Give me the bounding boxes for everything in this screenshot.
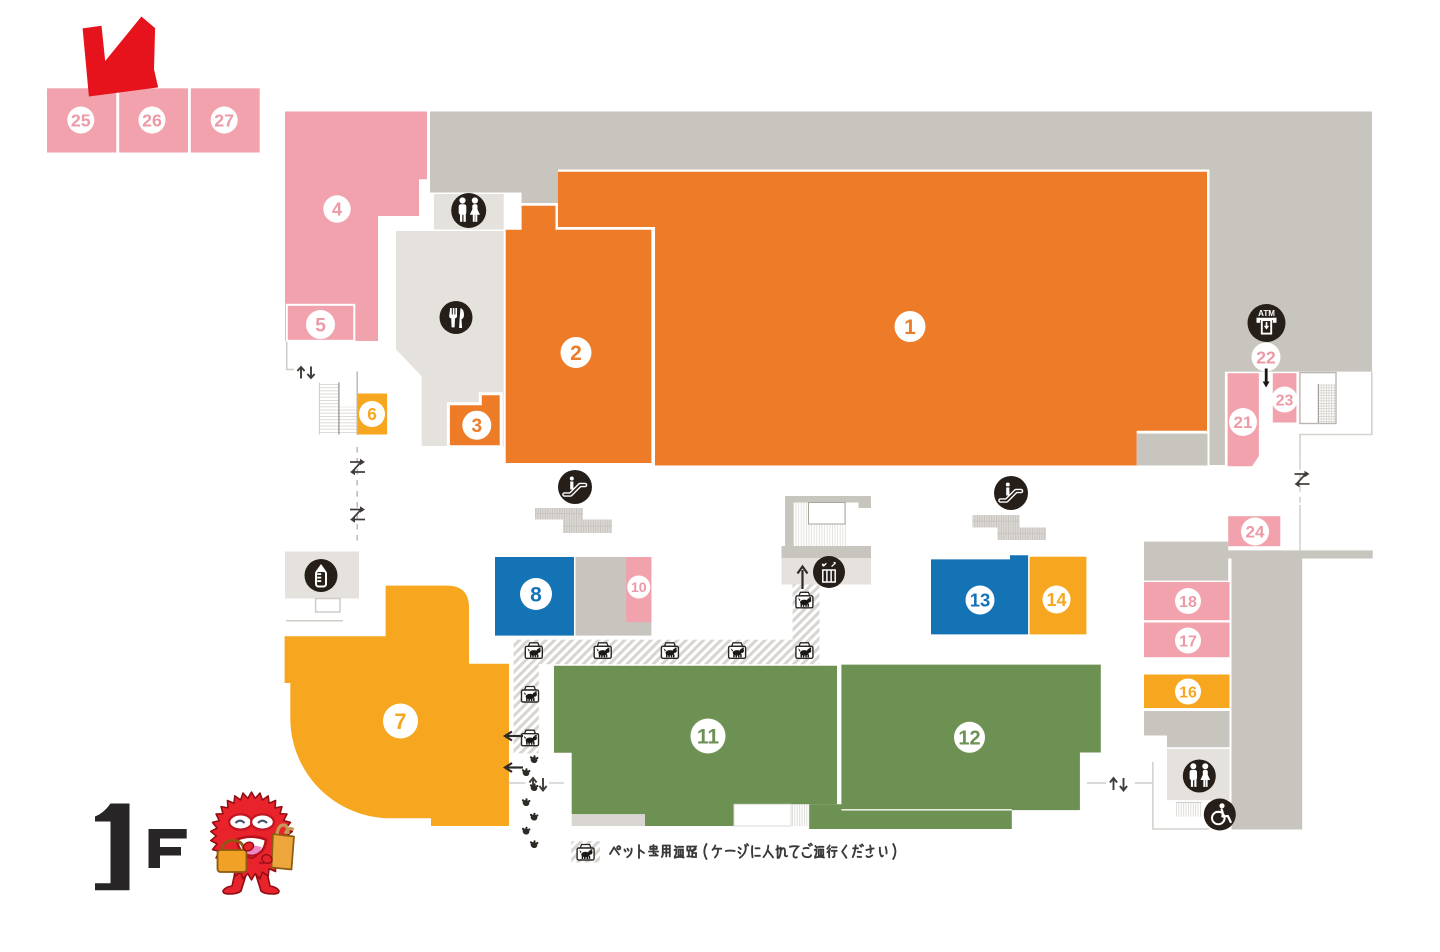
svg-text:25: 25 bbox=[71, 110, 91, 130]
svg-text:4: 4 bbox=[332, 200, 342, 220]
svg-text:ATM: ATM bbox=[1258, 309, 1275, 318]
svg-text:21: 21 bbox=[1234, 413, 1253, 432]
svg-text:24: 24 bbox=[1246, 523, 1265, 542]
svg-text:14: 14 bbox=[1046, 590, 1066, 610]
svg-text:16: 16 bbox=[1179, 684, 1197, 701]
svg-text:2: 2 bbox=[570, 342, 582, 365]
svg-text:1: 1 bbox=[904, 316, 916, 339]
svg-text:12: 12 bbox=[958, 728, 980, 750]
svg-text:13: 13 bbox=[970, 590, 991, 611]
svg-text:22: 22 bbox=[1256, 347, 1276, 367]
svg-text:10: 10 bbox=[631, 579, 647, 595]
svg-text:8: 8 bbox=[530, 584, 542, 607]
svg-text:3: 3 bbox=[471, 416, 482, 437]
svg-text:6: 6 bbox=[367, 404, 377, 424]
svg-text:27: 27 bbox=[214, 110, 234, 130]
svg-text:5: 5 bbox=[315, 315, 326, 336]
svg-text:17: 17 bbox=[1179, 633, 1197, 650]
svg-text:7: 7 bbox=[394, 709, 406, 734]
svg-text:18: 18 bbox=[1179, 594, 1197, 611]
svg-text:23: 23 bbox=[1276, 392, 1294, 409]
svg-text:11: 11 bbox=[697, 726, 720, 749]
svg-text:26: 26 bbox=[142, 110, 162, 130]
